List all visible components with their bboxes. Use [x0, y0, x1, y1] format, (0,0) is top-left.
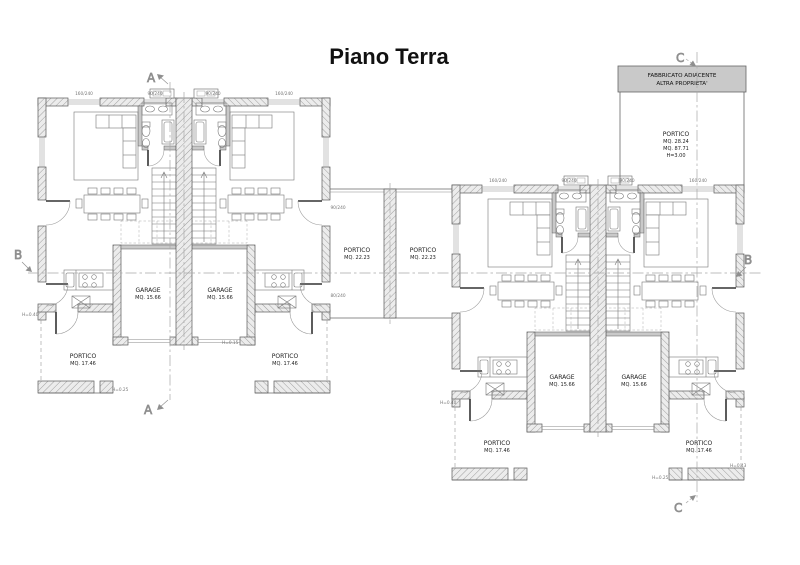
- window-dim: 90/240: [561, 178, 576, 184]
- portico-label: PORTICO: [272, 353, 299, 360]
- portico-area: MQ. 22.23: [344, 255, 370, 261]
- window-dim: 90/240: [147, 91, 162, 97]
- height-note: H=0.40: [440, 400, 457, 406]
- portico-label: PORTICO: [686, 440, 713, 447]
- section-c-bottom: C: [674, 501, 682, 515]
- window-dim: 90/240: [330, 205, 345, 211]
- window-dim: 80/240: [330, 293, 345, 299]
- portico-label: PORTICO: [410, 247, 437, 254]
- height-note: H=0.25: [112, 387, 129, 393]
- section-c-top: C: [676, 51, 684, 65]
- window-dim: 160/240: [275, 91, 293, 97]
- portico-area: MQ. 17.46: [70, 361, 96, 367]
- section-b-right: B: [744, 253, 752, 267]
- annex-portico-area2: MQ. 87.71: [663, 146, 689, 152]
- window-dim: 90/240: [205, 91, 220, 97]
- height-note: H=0.43: [730, 463, 747, 469]
- floor-plan-page: Piano Terra FABBRICATO ADIACENTE ALTRA P…: [0, 0, 800, 565]
- portico-label: PORTICO: [70, 353, 97, 360]
- portico-label: PORTICO: [344, 247, 371, 254]
- section-a-bottom: A: [144, 403, 153, 417]
- garage-label: GARAGE: [549, 374, 574, 381]
- garage-label: GARAGE: [135, 287, 160, 294]
- portico-area: MQ. 17.46: [686, 448, 712, 454]
- height-note: H=0.15: [222, 340, 239, 346]
- garage-area: MQ. 15.66: [549, 382, 575, 388]
- section-a-top: A: [147, 71, 156, 85]
- height-note: H=0.40: [22, 312, 39, 318]
- portico-area: MQ. 17.46: [272, 361, 298, 367]
- page-title: Piano Terra: [329, 44, 449, 69]
- window-dim: 160/240: [689, 178, 707, 184]
- building-right: [452, 176, 744, 480]
- garage-area: MQ. 15.66: [207, 295, 233, 301]
- height-note: H=0.25: [652, 475, 669, 481]
- annex-label-line2: ALTRA PROPRIETA': [656, 81, 707, 87]
- annex-portico-area1: MQ. 28.24: [663, 139, 689, 145]
- building-left: [38, 89, 330, 393]
- floor-plan-drawing: Piano Terra FABBRICATO ADIACENTE ALTRA P…: [0, 0, 800, 565]
- garage-label: GARAGE: [207, 287, 232, 294]
- annex-portico-height: H=3.00: [666, 153, 685, 159]
- window-dim: 160/240: [489, 178, 507, 184]
- garage-area: MQ. 15.66: [621, 382, 647, 388]
- window-dim: 160/240: [75, 91, 93, 97]
- portico-label: PORTICO: [484, 440, 511, 447]
- garage-label: GARAGE: [621, 374, 646, 381]
- section-b-left: B: [14, 248, 22, 262]
- annex-portico-label: PORTICO: [663, 131, 690, 138]
- garage-area: MQ. 15.66: [135, 295, 161, 301]
- portico-area: MQ. 17.46: [484, 448, 510, 454]
- window-dim: 90/240: [619, 178, 634, 184]
- portico-area: MQ. 22.23: [410, 255, 436, 261]
- annex-label-line1: FABBRICATO ADIACENTE: [648, 73, 717, 79]
